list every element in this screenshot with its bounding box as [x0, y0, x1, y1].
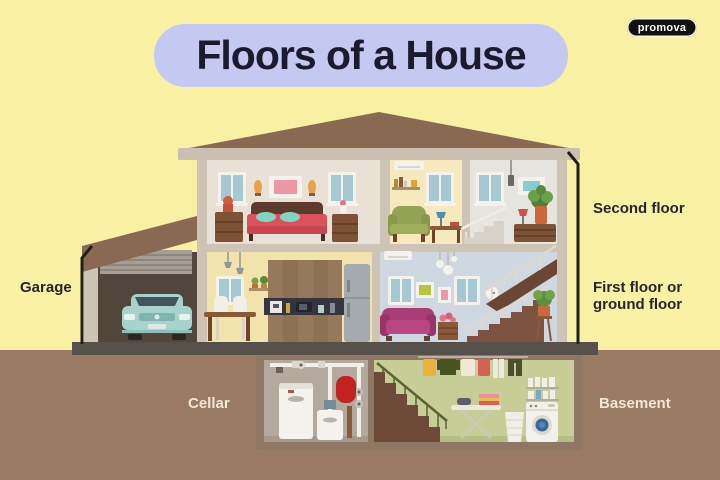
scene: Floors of a House promova Garage Second …	[0, 0, 720, 480]
label-first-floor: First floor or ground floor	[593, 279, 707, 313]
window	[454, 276, 480, 305]
foundation	[72, 342, 598, 355]
meter-box	[276, 366, 283, 373]
expansion-tank	[336, 376, 356, 403]
window	[424, 172, 456, 206]
garage-room	[82, 216, 197, 344]
laundry-basket	[505, 412, 524, 442]
wall-picture	[269, 176, 302, 198]
air-conditioner	[394, 161, 424, 170]
label-basement: Basement	[599, 395, 671, 412]
brand-logo-text: promova	[638, 22, 687, 34]
wall-picture	[438, 287, 451, 303]
wall-sconce	[254, 180, 262, 196]
wall-sconce	[308, 180, 316, 196]
drain-pipe	[347, 406, 352, 438]
window	[388, 276, 414, 305]
refrigerator	[344, 264, 370, 342]
floor-band	[197, 244, 567, 252]
label-garage: Garage	[20, 279, 72, 296]
right-downspout	[568, 152, 578, 344]
garage-pillar	[84, 264, 98, 342]
pump	[324, 400, 336, 409]
label-cellar: Cellar	[188, 395, 230, 412]
window	[474, 172, 506, 206]
boiler	[279, 383, 313, 439]
clothes-line	[418, 357, 528, 378]
brand-badge: promova	[627, 18, 697, 37]
washing-machine	[526, 402, 558, 442]
wall-picture	[416, 282, 434, 298]
kitchen-cabinets	[264, 260, 346, 342]
label-second-floor: Second floor	[593, 200, 685, 217]
air-conditioner	[384, 251, 412, 260]
page-title: Floors of a House	[196, 32, 525, 79]
water-tank	[317, 410, 343, 440]
title-banner: Floors of a House	[154, 24, 568, 87]
roof	[178, 112, 580, 160]
